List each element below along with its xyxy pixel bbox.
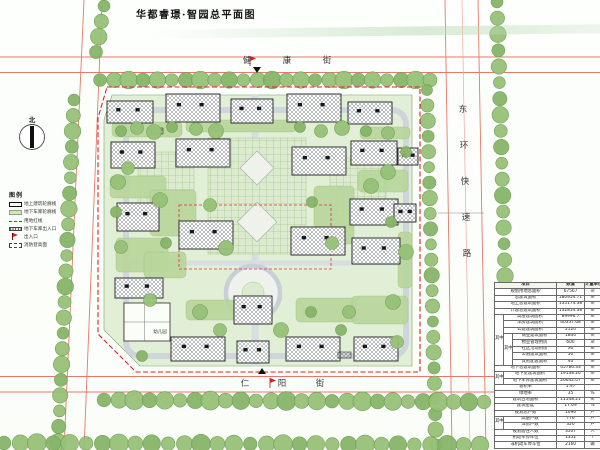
legend-item-label: 出入口 [24, 234, 38, 240]
tree-icon [161, 238, 172, 249]
tree-icon [428, 422, 443, 437]
tree-icon [494, 187, 511, 204]
legend-item: 用地红线 [9, 218, 79, 224]
site-labels: 幼儿园 [153, 328, 167, 335]
table-cell: 19138.26 [557, 372, 585, 378]
legend-symbol-ramp-icon [9, 227, 22, 231]
tree-icon [280, 73, 294, 87]
street-label: 东 [459, 104, 468, 115]
tree-icon [204, 199, 217, 212]
tree-icon [407, 71, 425, 89]
tree-icon [421, 145, 435, 159]
legend-item: 地下车库出入口 [9, 226, 79, 232]
tree-icon [427, 316, 438, 327]
building [124, 303, 170, 341]
tree-icon [277, 391, 296, 410]
drawing-sheet: 北 健康街仁阳街东环快速路 幼儿园 华都睿璟·智园总平面图 图例 地上建筑轮廓线… [0, 0, 600, 450]
building [351, 141, 397, 165]
building [231, 99, 273, 123]
tree-icon [492, 107, 509, 124]
tree-icon [308, 392, 326, 410]
street-label: 快 [461, 176, 470, 187]
table-cell: 其中 [504, 334, 513, 366]
tree-icon [249, 394, 263, 408]
table-cell: 180954.71 [557, 295, 585, 301]
tree-icon [142, 393, 157, 408]
tree-icon [137, 351, 148, 362]
drawing-title: 华都睿璟·智园总平面图 [136, 6, 256, 21]
tree-icon [89, 45, 102, 58]
tree-icon [496, 220, 511, 235]
tree-icon [381, 74, 394, 87]
tree-icon [492, 44, 505, 57]
entrance-flag-icon [270, 378, 276, 383]
tree-icon [438, 435, 457, 450]
tree-icon [55, 342, 69, 356]
building [352, 238, 400, 264]
table-cell: 26642.07 [557, 378, 585, 384]
plan-label: 幼儿园 [153, 328, 167, 335]
tree-icon [326, 237, 339, 250]
tree-icon [46, 436, 61, 450]
tree-icon [192, 71, 210, 89]
tree-icon [65, 140, 78, 153]
tree-icon [232, 392, 250, 410]
tree-icon [109, 434, 128, 450]
building [287, 94, 341, 122]
tree-icon [335, 71, 353, 89]
tree-icon [193, 305, 208, 320]
tree-icon [64, 123, 81, 140]
tree-icon [364, 72, 381, 89]
tree-icon [361, 126, 372, 137]
tree-icon [54, 405, 66, 417]
tree-icon [401, 147, 412, 158]
tree-icon [52, 419, 66, 433]
tree-icon [425, 239, 436, 250]
tree-icon [401, 395, 415, 409]
tree-icon [426, 345, 441, 360]
tree-icon [425, 253, 438, 266]
legend-symbol-building-icon [9, 202, 22, 207]
tree-icon [336, 325, 347, 336]
tree-icon [149, 72, 166, 89]
tree-icon [258, 436, 274, 450]
tree-icon [167, 122, 178, 133]
legend-item: 地上建筑轮廓线 [9, 201, 79, 207]
tree-icon [325, 394, 339, 408]
tree-icon [421, 99, 434, 112]
north-label: 北 [29, 115, 36, 124]
tree-icon [423, 437, 439, 450]
tree-icon [420, 113, 435, 128]
building [394, 204, 416, 222]
tree-icon [225, 435, 243, 450]
tree-icon [56, 310, 71, 325]
tree-icon [497, 205, 510, 218]
building [115, 278, 163, 298]
legend-symbol-fire-icon [9, 243, 22, 248]
street-label: 健 [243, 55, 252, 66]
tree-icon [94, 14, 108, 28]
table-cell: 非机动车停车位 [495, 442, 557, 449]
building [292, 147, 346, 175]
tree-icon [128, 436, 143, 450]
street-label: 路 [463, 248, 472, 259]
tree-icon [422, 130, 434, 142]
tree-icon [295, 122, 306, 133]
tree-icon [64, 172, 76, 184]
tree-icon [97, 393, 111, 407]
street-label: 街 [316, 378, 325, 389]
tree-icon [460, 393, 478, 411]
tree-icon [57, 327, 69, 339]
tree-icon [59, 264, 73, 278]
tree-icon [421, 84, 432, 95]
tree-icon [237, 74, 250, 87]
tree-icon [221, 72, 238, 89]
tree-icon [61, 434, 79, 450]
table-cell: 其中 [495, 372, 504, 385]
tree-icon [384, 393, 402, 411]
tree-icon [116, 126, 127, 137]
tree-icon [386, 217, 397, 228]
tree-icon [356, 435, 375, 450]
tree-icon [52, 388, 67, 403]
tree-icon [143, 435, 161, 450]
tree-icon [364, 179, 379, 194]
tree-icon [214, 324, 227, 337]
tree-icon [427, 376, 441, 390]
tree-icon [496, 157, 508, 169]
tree-icon [491, 0, 503, 8]
tree-icon [111, 175, 126, 190]
table-cell: 计量单位 [585, 283, 600, 289]
tree-icon [306, 307, 317, 318]
building [237, 341, 269, 363]
building [107, 101, 153, 123]
tree-icon [425, 299, 439, 313]
tree-icon [498, 238, 510, 250]
building [234, 296, 272, 324]
tree-icon [428, 362, 440, 374]
tree-icon [424, 268, 439, 283]
tree-icon [243, 437, 257, 450]
tree-icon [493, 92, 507, 106]
building [117, 203, 159, 231]
tree-icon [66, 108, 80, 122]
legend: 图例 地上建筑轮廓线地下车库轮廓线用地红线地下车库出入口出入口消防登高面 [9, 190, 79, 250]
tree-icon [190, 123, 203, 136]
tree-icon [399, 245, 414, 260]
street-label: 阳 [278, 379, 287, 389]
street-label: 康 [283, 55, 292, 66]
table-cell: 11548.21 [557, 397, 585, 403]
tree-icon [422, 190, 437, 205]
tree-icon [161, 437, 175, 450]
tree-icon [353, 392, 372, 411]
tree-icon [165, 74, 178, 87]
tree-icon [446, 394, 461, 409]
tree-icon [136, 73, 150, 87]
tree-icon [147, 125, 162, 140]
tree-icon [423, 176, 436, 189]
building [166, 94, 220, 122]
tree-icon [61, 250, 73, 262]
legend-item-label: 地上建筑轮廓线 [24, 201, 56, 207]
tree-icon [325, 438, 339, 450]
table-cell: 其中 [495, 314, 504, 365]
street-label: 仁 [241, 378, 250, 389]
tree-icon [68, 94, 80, 106]
tree-icon [374, 437, 389, 450]
tree-icon [53, 356, 70, 373]
legend-symbol-redline-icon [9, 221, 22, 222]
legend-item-label: 消防登高面 [24, 242, 47, 248]
tree-icon [94, 74, 107, 87]
tree-icon [173, 394, 187, 408]
legend-title: 图例 [9, 190, 79, 199]
tree-icon [386, 295, 401, 310]
tree-icon [210, 436, 225, 450]
tree-icon [389, 436, 407, 450]
tree-icon [79, 437, 93, 450]
tree-icon [493, 77, 505, 89]
tree-icon [490, 11, 504, 25]
tree-icon [153, 193, 168, 208]
table-cell: 135174.38 [557, 302, 585, 308]
building [171, 337, 225, 361]
legend-item: 出入口 [9, 234, 79, 240]
tree-icon [335, 121, 350, 136]
tree-icon [115, 241, 128, 254]
tree-icon [263, 71, 281, 89]
table-cell: 132854.38 [557, 308, 585, 314]
table-cell: 其中 [495, 416, 504, 429]
tree-icon [351, 73, 365, 87]
tree-icon [343, 306, 356, 319]
tree-icon [274, 323, 289, 338]
tree-icon [494, 124, 507, 137]
tree-icon [382, 127, 395, 140]
table-cell: 辆 [585, 442, 600, 449]
legend-item-label: 地下车库出入口 [24, 226, 56, 232]
building [286, 337, 340, 361]
tree-icon [292, 437, 307, 450]
tree-icon [381, 165, 396, 180]
table-cell: 2160 [557, 442, 585, 449]
tree-icon [429, 392, 448, 411]
legend-symbol-flag-icon [9, 234, 22, 239]
tree-icon [201, 391, 220, 410]
legend-symbol-garage-icon [9, 210, 22, 215]
tree-icon [426, 285, 438, 297]
tree-icon [423, 222, 437, 236]
street-label: 速 [462, 213, 471, 223]
tree-icon [125, 391, 144, 410]
tree-icon [156, 392, 174, 410]
tree-icon [176, 436, 192, 450]
tree-icon [191, 434, 210, 450]
tree-icon [341, 436, 357, 450]
indicators-table: 项目数值计量单位规划用地总面积67567㎡总建筑面积180954.71㎡地上总建… [494, 282, 600, 449]
legend-item: 消防登高面 [9, 242, 79, 248]
tree-icon [294, 394, 309, 409]
tree-icon [274, 435, 293, 450]
tree-icon [293, 72, 310, 89]
tree-icon [408, 438, 422, 450]
tree-icon [370, 394, 385, 409]
tree-icon [98, 0, 110, 12]
tree-icon [58, 296, 71, 309]
tree-icon [309, 74, 322, 87]
tree-icon [144, 294, 157, 307]
tree-icon [54, 373, 67, 386]
tree-icon [315, 125, 328, 138]
street-label: 街 [323, 55, 332, 66]
tree-icon [27, 434, 46, 450]
street-label: 环 [460, 141, 469, 151]
tree-icon [477, 395, 491, 409]
tree-icon [0, 436, 11, 450]
table-cell: 45780.33 [557, 365, 585, 371]
tree-icon [94, 435, 110, 450]
tree-icon [427, 330, 440, 343]
north-arrow: 北 [20, 115, 45, 150]
tree-icon [209, 124, 224, 139]
tree-icon [218, 393, 233, 408]
tree-icon [131, 122, 144, 135]
tree-icon [497, 253, 511, 267]
tree-icon [90, 28, 107, 45]
tree-icon [491, 59, 506, 74]
tree-icon [208, 73, 222, 87]
tree-icon [111, 207, 122, 218]
tree-icon [495, 172, 509, 186]
entrance-arrow-icon [258, 368, 266, 374]
legend-item-label: 用地红线 [24, 218, 42, 224]
tree-icon [122, 162, 135, 175]
tree-icon [423, 162, 434, 173]
tree-icon [307, 436, 325, 450]
building [348, 102, 392, 124]
tree-icon [12, 435, 28, 450]
tree-icon [494, 139, 509, 154]
tree-icon [57, 278, 74, 295]
tree-icon [391, 336, 404, 349]
tree-icon [63, 154, 78, 169]
tree-icon [456, 437, 471, 450]
legend-item: 地下车库轮廓线 [9, 209, 79, 215]
legend-item-label: 地下车库轮廓线 [24, 209, 56, 215]
table-cell: 40337.68 [557, 321, 585, 327]
tree-icon [424, 207, 436, 219]
tree-icon [307, 197, 318, 208]
tree-icon [120, 71, 138, 89]
tree-icon [219, 241, 234, 256]
building [176, 139, 230, 167]
